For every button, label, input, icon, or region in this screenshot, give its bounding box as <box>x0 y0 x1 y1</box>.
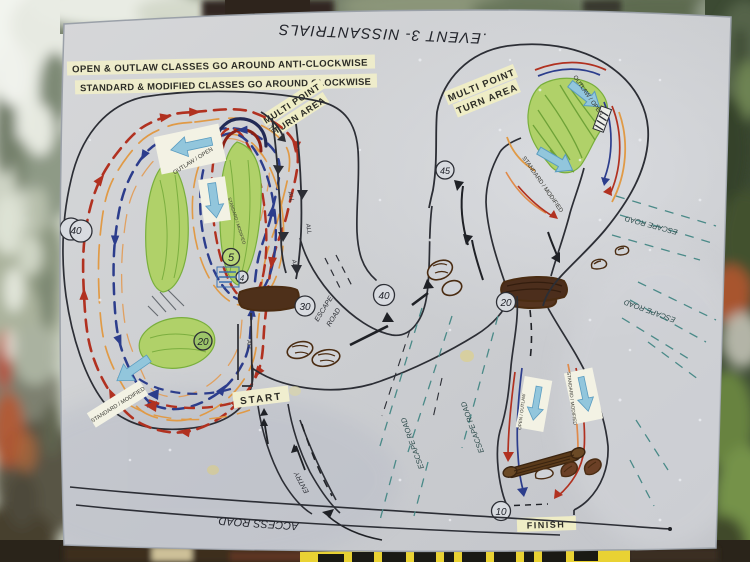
svg-text:20: 20 <box>499 298 512 309</box>
svg-text:5: 5 <box>228 252 235 264</box>
svg-text:45: 45 <box>440 166 451 176</box>
svg-text:4: 4 <box>240 274 245 283</box>
svg-text:30: 30 <box>299 302 311 313</box>
svg-text:20: 20 <box>196 337 209 348</box>
svg-text:40: 40 <box>378 291 390 302</box>
svg-text:40: 40 <box>70 226 82 237</box>
svg-text:10: 10 <box>495 507 507 518</box>
